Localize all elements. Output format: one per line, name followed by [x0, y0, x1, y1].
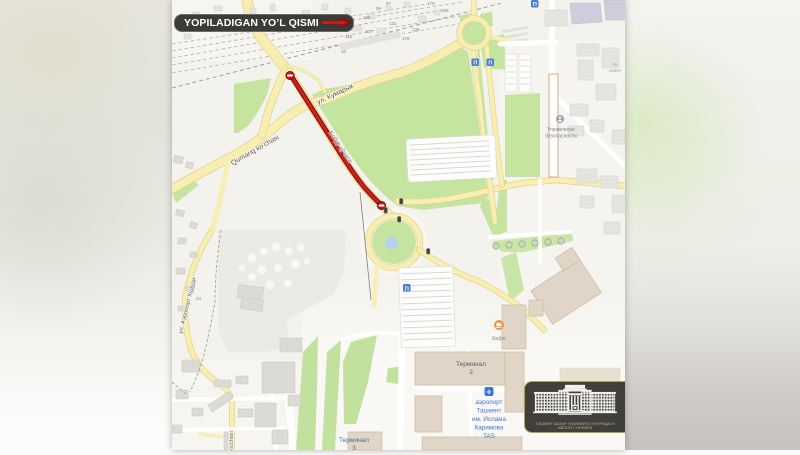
- svg-text:П: П: [488, 61, 492, 67]
- svg-text:155: 155: [441, 8, 449, 13]
- svg-text:2: 2: [469, 369, 473, 376]
- svg-text:107: 107: [365, 29, 373, 34]
- svg-text:178: 178: [402, 36, 410, 41]
- svg-text:3: 3: [352, 445, 356, 450]
- svg-text:аэропорт: аэропорт: [476, 399, 503, 406]
- svg-text:99: 99: [376, 6, 382, 11]
- svg-text:10: 10: [341, 49, 347, 54]
- svg-text:135: 135: [412, 27, 420, 32]
- svg-text:П: П: [473, 61, 477, 67]
- svg-text:Терминал: Терминал: [339, 437, 369, 444]
- svg-text:115: 115: [345, 34, 353, 39]
- svg-text:комеч: комеч: [609, 68, 622, 73]
- svg-text:97: 97: [386, 1, 392, 6]
- svg-text:Каримова: Каримова: [475, 425, 504, 432]
- svg-text:TAS: TAS: [483, 433, 495, 440]
- svg-text:П: П: [533, 2, 537, 8]
- svg-text:Кафе: Кафе: [492, 336, 506, 342]
- svg-text:безопасности: безопасности: [545, 134, 577, 140]
- svg-text:125: 125: [363, 15, 371, 20]
- svg-text:24: 24: [196, 296, 202, 301]
- svg-text:Ле: Ле: [612, 62, 618, 67]
- svg-text:Терминал: Терминал: [456, 361, 486, 368]
- svg-text:П: П: [405, 286, 409, 292]
- svg-text:✈: ✈: [486, 390, 492, 397]
- svg-text:Ташкент: Ташкент: [477, 408, 502, 415]
- svg-text:170: 170: [427, 1, 435, 6]
- svg-text:ko'chasi: ko'chasi: [229, 431, 235, 450]
- svg-text:131: 131: [389, 21, 397, 26]
- svg-text:им. Ислама: им. Ислама: [472, 416, 507, 423]
- svg-text:Управление: Управление: [547, 127, 575, 133]
